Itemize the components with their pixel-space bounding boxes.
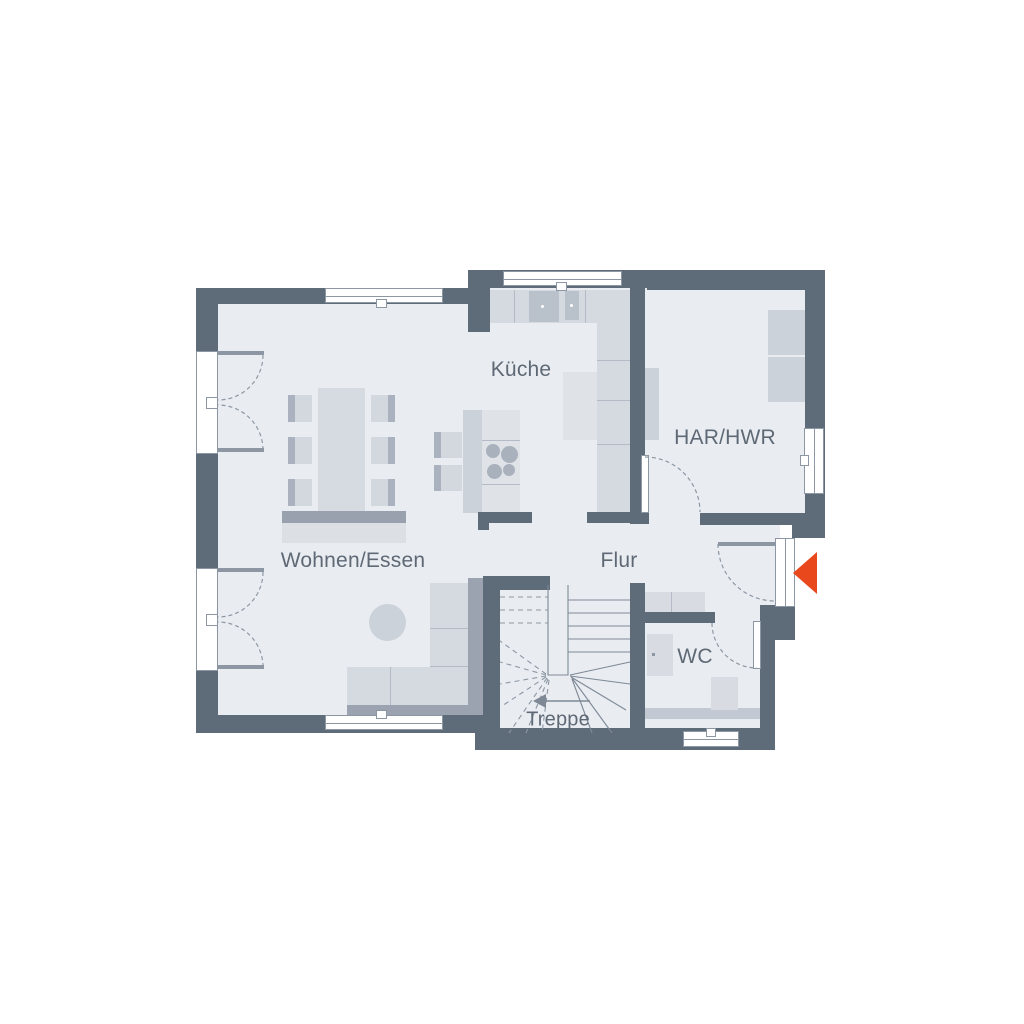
window-handle <box>800 455 809 466</box>
dining-chair <box>371 437 395 464</box>
floor-plan-canvas: Küche HAR/HWR Wohnen/Essen Flur WC Trepp… <box>0 0 1024 1024</box>
sofa-cushion-divider <box>390 667 391 707</box>
room-label-stairs: Treppe <box>526 709 590 732</box>
kitchen-tall-cabinet <box>563 372 597 440</box>
kitchen-sink-appliance <box>529 291 559 322</box>
door-leaf <box>218 568 264 572</box>
entry-door-frame <box>775 538 795 607</box>
window-handle <box>376 710 387 719</box>
counter-divider <box>597 400 632 401</box>
room-label-wc: WC <box>677 645 712 669</box>
window-handle <box>556 282 567 291</box>
wall-stair-left <box>483 576 500 733</box>
wall-island-stub-v <box>478 512 489 530</box>
room-label-living-dining: Wohnen/Essen <box>281 549 425 573</box>
dryer <box>768 357 807 402</box>
counter-divider <box>597 360 632 361</box>
appliance-dot <box>570 304 573 307</box>
wall-stair-top <box>483 576 550 590</box>
wall-wc-right <box>760 605 775 738</box>
wall-stair-right <box>630 583 645 733</box>
wall-entry-corner <box>792 513 825 538</box>
wall-utility-bottom <box>700 513 792 525</box>
dining-chair <box>371 479 395 506</box>
door-leaf <box>218 665 264 669</box>
washer <box>768 310 807 355</box>
wc-sink-dot <box>652 653 655 656</box>
room-label-utility: HAR/HWR <box>674 426 776 450</box>
entrance-arrow-icon <box>793 552 817 594</box>
island-divider <box>482 484 520 485</box>
door-leaf <box>218 448 264 452</box>
utility-shelf <box>645 368 659 440</box>
wall-top-utility <box>647 270 825 290</box>
window-handle <box>376 299 387 308</box>
sofa-cushion-divider <box>430 666 468 667</box>
island-chair <box>434 465 462 491</box>
dining-chair <box>288 479 312 506</box>
sideboard-top <box>282 511 406 523</box>
door-leaf <box>218 351 264 355</box>
sofa-cushion-divider <box>430 628 468 629</box>
sofa-seat-vertical <box>430 583 468 707</box>
sofa-backrest-right <box>468 578 483 717</box>
island-bar-counter <box>463 410 482 513</box>
window-handle <box>706 728 716 737</box>
island-chair <box>434 432 462 458</box>
counter-divider <box>514 290 515 323</box>
wc-door-leaf <box>753 621 761 669</box>
dining-table <box>318 388 365 512</box>
wc-sink <box>647 634 673 676</box>
utility-door-leaf <box>641 455 649 513</box>
counter-divider <box>597 444 632 445</box>
cooktop-burner <box>486 444 500 458</box>
wall-kitchen-step <box>468 270 490 332</box>
door-handle <box>206 397 218 409</box>
dining-chair <box>288 395 312 422</box>
wc-toilet <box>711 677 738 710</box>
wall-entry-below <box>775 605 795 640</box>
cooktop-burner <box>503 464 515 476</box>
sofa-seat-horizontal <box>347 667 430 707</box>
side-table <box>369 604 406 641</box>
dining-chair <box>371 395 395 422</box>
kitchen-counter-right <box>597 323 632 512</box>
wc-ledge <box>645 708 761 719</box>
wall-hall-kitchen <box>587 512 630 523</box>
room-label-kitchen: Küche <box>491 358 552 382</box>
wardrobe-bench <box>639 592 705 612</box>
sideboard-body <box>282 523 406 543</box>
wardrobe-divider <box>671 592 672 612</box>
cooktop-burner <box>501 446 518 463</box>
entry-door-leaf <box>718 542 775 546</box>
door-handle <box>206 614 218 626</box>
island-divider <box>482 440 520 441</box>
counter-divider <box>585 290 586 323</box>
dining-chair <box>288 437 312 464</box>
room-label-hallway: Flur <box>601 549 638 573</box>
appliance-dot <box>541 305 544 308</box>
kitchen-counter-top <box>490 290 637 323</box>
cooktop-burner <box>487 464 502 479</box>
